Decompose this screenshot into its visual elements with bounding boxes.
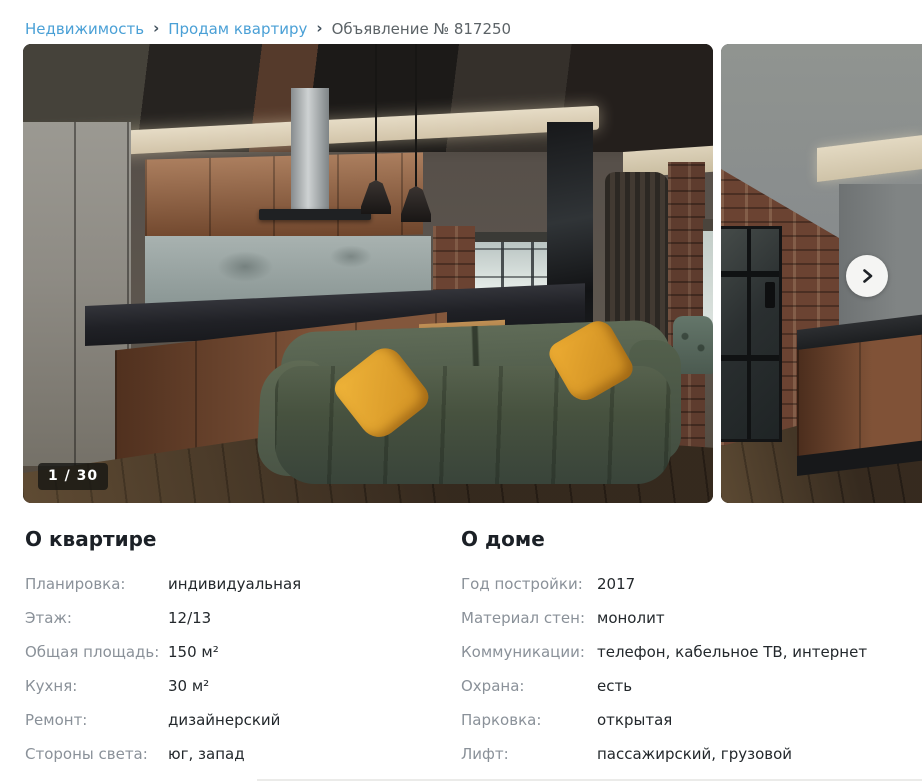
section-title-house: О доме [461,526,905,552]
photo-gray-cabinets [23,122,131,466]
property-label: Материал стен: [461,610,597,626]
breadcrumb-current-listing: Объявление № 817250 [332,20,512,38]
property-row: Год постройки: 2017 [461,576,905,592]
property-row: Общая площадь: 150 м² [25,644,461,660]
property-value: есть [597,678,632,694]
property-row: Материал стен: монолит [461,610,905,626]
property-row: Стороны света: юг, запад [25,746,461,762]
photo-gallery: 1 / 30 [23,44,922,503]
property-label: Ремонт: [25,712,168,728]
property-label: Кухня: [25,678,168,694]
property-label: Лифт: [461,746,597,762]
photo-glass-partition [721,226,782,442]
next-photo-button[interactable] [846,255,888,297]
property-label: Планировка: [25,576,168,592]
photo-range-hood [291,88,329,214]
property-value: открытая [597,712,672,728]
about-house-section: О доме Год постройки: 2017 Материал стен… [461,526,905,780]
property-label: Коммуникации: [461,644,597,660]
section-divider [257,779,922,781]
property-label: Год постройки: [461,576,597,592]
property-label: Этаж: [25,610,168,626]
property-row: Охрана: есть [461,678,905,694]
property-details: О квартире Планировка: индивидуальная Эт… [25,526,905,780]
photo-lamp-cord [375,44,377,182]
property-label: Парковка: [461,712,597,728]
property-label: Общая площадь: [25,644,168,660]
property-value: монолит [597,610,665,626]
property-row: Коммуникации: телефон, кабельное ТВ, инт… [461,644,905,660]
property-value: дизайнерский [168,712,280,728]
property-value: 30 м² [168,678,209,694]
property-label: Охрана: [461,678,597,694]
property-row: Лифт: пассажирский, грузовой [461,746,905,762]
property-value: телефон, кабельное ТВ, интернет [597,644,867,660]
breadcrumb-link-realty[interactable]: Недвижимость [25,20,144,38]
photo-counter-badge: 1 / 30 [38,463,108,490]
property-value: индивидуальная [168,576,301,592]
breadcrumb-separator-icon: › [316,19,322,37]
photo-door-handle [765,282,775,308]
photo-range-hood-canopy [259,209,371,220]
property-row: Кухня: 30 м² [25,678,461,694]
property-row: Ремонт: дизайнерский [25,712,461,728]
property-row: Парковка: открытая [461,712,905,728]
breadcrumb-link-sell-apartment[interactable]: Продам квартиру [168,20,307,38]
property-value: 2017 [597,576,635,592]
next-arrow-icon [860,268,875,284]
breadcrumb: Недвижимость › Продам квартиру › Объявле… [0,0,922,38]
property-label: Стороны света: [25,746,168,762]
photo-lamp-cord [415,44,417,188]
section-title-apartment: О квартире [25,526,461,552]
property-row: Планировка: индивидуальная [25,576,461,592]
main-photo[interactable]: 1 / 30 [23,44,713,503]
property-value: пассажирский, грузовой [597,746,792,762]
next-photo-preview[interactable] [721,44,922,503]
property-row: Этаж: 12/13 [25,610,461,626]
about-apartment-section: О квартире Планировка: индивидуальная Эт… [25,526,461,780]
property-value: 12/13 [168,610,211,626]
property-value: 150 м² [168,644,219,660]
breadcrumb-separator-icon: › [153,19,159,37]
photo-island-front [797,335,922,458]
property-value: юг, запад [168,746,245,762]
